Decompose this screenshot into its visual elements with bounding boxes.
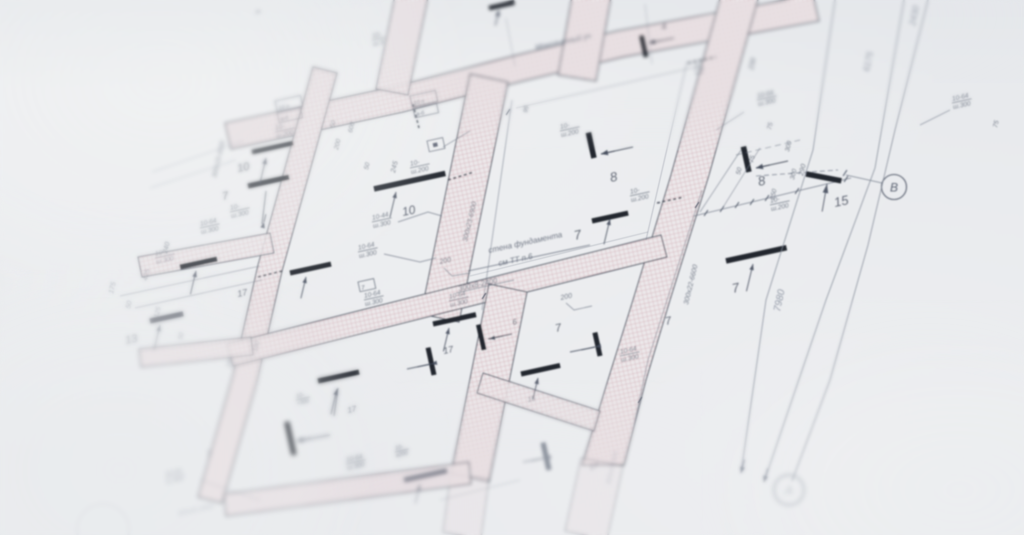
svg-text:В: В xyxy=(890,180,898,194)
